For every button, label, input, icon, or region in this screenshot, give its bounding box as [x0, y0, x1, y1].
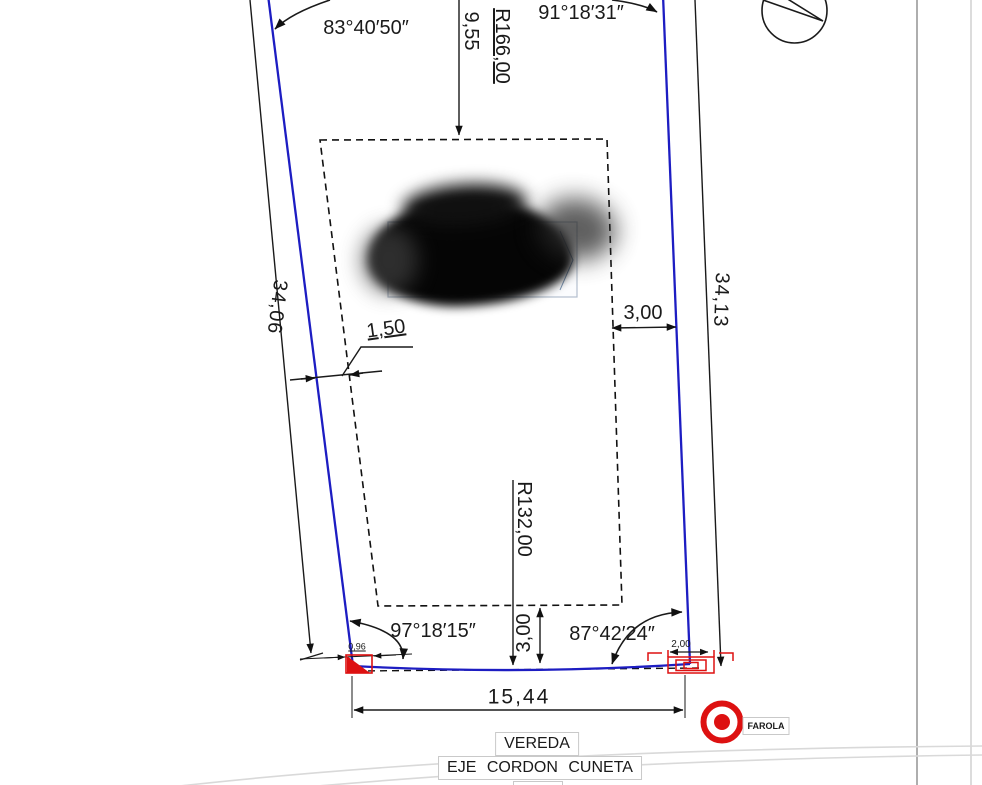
dimension-setback-bottom: 3,00 [514, 614, 534, 653]
farola-symbol [704, 704, 741, 741]
dimension-setback-right: 3,00 [624, 303, 663, 323]
dimension-corner-detail: 0,96 [348, 643, 366, 652]
dimension-side-right: 34,13 [710, 272, 732, 328]
angle-label-top-right: 91°18′31″ [538, 3, 624, 23]
radius-bottom-label: R132,00 [514, 481, 534, 557]
eje-cordon-cuneta-label: EJE CORDON CUNETA [438, 756, 642, 780]
parcel-boundary-lines [268, 0, 690, 670]
drawing-geometry [0, 0, 982, 785]
radius-top-label: R166,00 [492, 8, 512, 84]
dimension-setback-left: 1,50 [365, 316, 406, 341]
angle-label-bottom-left: 97°18′15″ [390, 621, 476, 641]
angle-label-top-left: 83°40′50″ [323, 18, 409, 38]
dimension-top-offset: 9,55 [461, 12, 481, 51]
dimension-entrance-width: 2,00 [671, 640, 690, 650]
vereda-label: VEREDA [495, 732, 579, 756]
angle-label-bottom-right: 87°42′24″ [569, 624, 655, 644]
farola-label: FAROLA [743, 717, 790, 735]
north-indicator-icon [762, 0, 827, 43]
dimension-frontage: 15,44 [488, 687, 551, 708]
sheet-margin-lines [917, 0, 971, 785]
clipped-label-box [513, 781, 563, 785]
dimension-lines [250, 0, 721, 718]
parcel-survey-drawing: 83°40′50″ 91°18′31″ 97°18′15″ 87°42′24″ … [0, 0, 982, 785]
redaction-blob-smear-left [360, 226, 418, 294]
